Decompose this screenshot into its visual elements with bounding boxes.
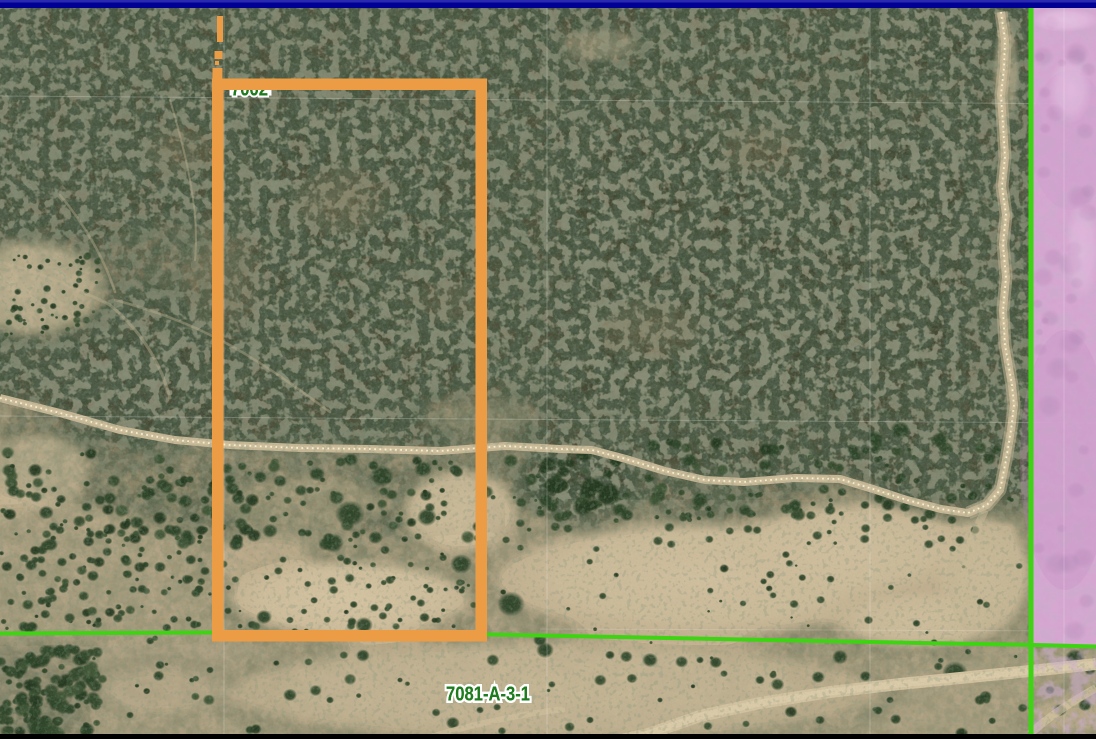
svg-text:7081-A-3-1: 7081-A-3-1 — [446, 684, 530, 706]
